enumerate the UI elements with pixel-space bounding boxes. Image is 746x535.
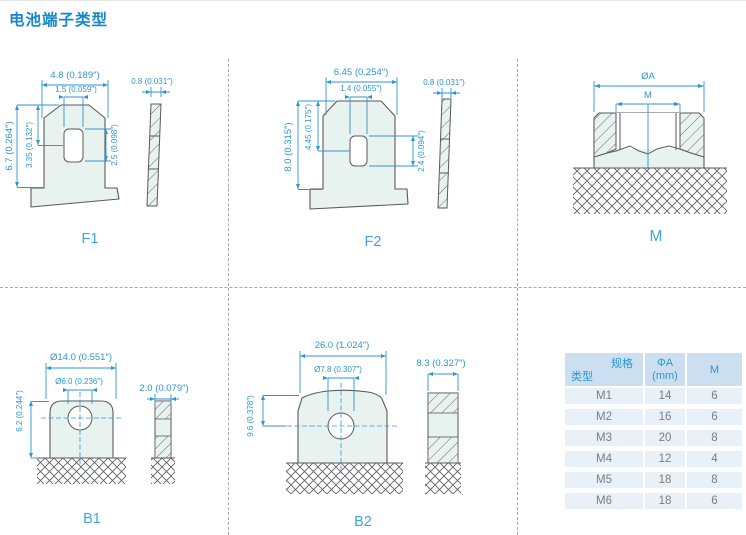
f1-dim-thickness: 0.8 (0.031″) (131, 77, 173, 97)
svg-text:8.0 (0.315″): 8.0 (0.315″) (283, 122, 294, 171)
svg-text:8.3 (0.327″): 8.3 (0.327″) (416, 358, 465, 369)
svg-text:6.2 (0.244″): 6.2 (0.244″) (15, 390, 24, 432)
svg-text:6.45 (0.254″): 6.45 (0.254″) (334, 67, 389, 78)
cell-type: M3 (565, 430, 643, 446)
b1-dim-outer-diameter: Ø14.0 (0.551″) (46, 352, 116, 399)
page-title: 电池端子类型 (9, 8, 108, 30)
cell-phia: 14 (645, 388, 685, 404)
table-header-type: 类型 (571, 368, 593, 384)
table-row: M3 20 8 (565, 430, 742, 446)
svg-text:2.5 (0.098″): 2.5 (0.098″) (110, 124, 119, 166)
b2-base-crosshatch (286, 463, 403, 494)
cell-type: M5 (565, 472, 643, 488)
svg-text:Ø14.0 (0.551″): Ø14.0 (0.551″) (50, 352, 112, 363)
b2-diagram: 26.0 (1.024″) Ø7.8 (0.307″) 9.6 (0.378″)… (228, 287, 517, 535)
table-header-phia-line1: ΦA (657, 357, 673, 370)
svg-text:6.7 (0.264″): 6.7 (0.264″) (4, 121, 15, 170)
b1-dim-height: 6.2 (0.244″) (15, 390, 49, 458)
b1-base-crosshatch (37, 458, 126, 484)
f2-label: F2 (365, 234, 382, 250)
svg-text:4.45 (0.175″): 4.45 (0.175″) (304, 104, 313, 150)
svg-text:9.6 (0.378″): 9.6 (0.378″) (246, 395, 255, 437)
cell-phia: 18 (645, 493, 685, 509)
table-header-row: 规格 类型 ΦA (mm) M (565, 353, 742, 386)
b2-label: B2 (354, 514, 372, 530)
cell-phia: 12 (645, 451, 685, 467)
b1-label: B1 (83, 511, 101, 527)
table-corner-cell: 规格 类型 (565, 353, 643, 386)
cell-m: 6 (687, 409, 742, 425)
m-left-wall-section (594, 113, 616, 157)
svg-text:0.8 (0.031″): 0.8 (0.031″) (131, 77, 173, 86)
f1-terminal-hole (64, 129, 83, 162)
f2-diagram: 6.45 (0.254″) 1.4 (0.055″) 8.0 (0.315″) … (228, 61, 517, 287)
b2-dim-thickness: 8.3 (0.327″) (416, 358, 465, 391)
table-row: M6 18 6 (565, 493, 742, 509)
svg-text:Ø7.8 (0.307″): Ø7.8 (0.307″) (314, 365, 362, 374)
svg-text:4.8 (0.189″): 4.8 (0.189″) (50, 70, 99, 81)
f2-side-view (438, 99, 451, 208)
cell-type: M4 (565, 451, 643, 467)
cell-type: M2 (565, 409, 643, 425)
table-row: M5 18 8 (565, 472, 742, 488)
b1-side-base-crosshatch (151, 458, 175, 484)
table-row: M4 12 4 (565, 451, 742, 467)
cell-m: 8 (687, 430, 742, 446)
m-base-crosshatch (573, 168, 727, 214)
svg-text:M: M (644, 90, 652, 101)
m-right-wall-section (680, 113, 704, 157)
table-header-spec: 规格 (611, 355, 633, 371)
table-row: M2 16 6 (565, 409, 742, 425)
cell-type: M6 (565, 493, 643, 509)
b2-side-base-crosshatch (425, 463, 461, 494)
table-header-phia-line2: (mm) (652, 370, 678, 383)
cell-m: 6 (687, 388, 742, 404)
cell-m: 4 (687, 451, 742, 467)
m-label: M (650, 228, 663, 246)
cell-phia: 18 (645, 472, 685, 488)
svg-text:1.4 (0.055″): 1.4 (0.055″) (340, 84, 382, 93)
b2-dim-height: 9.6 (0.378″) (246, 395, 299, 437)
svg-text:2.0 (0.079″): 2.0 (0.079″) (139, 383, 188, 394)
b1-dim-hole-diameter: Ø6.0 (0.236″) (55, 377, 103, 404)
svg-text:3.35 (0.132″): 3.35 (0.132″) (25, 122, 34, 168)
table-header-phia: ΦA (mm) (645, 353, 685, 386)
f2-terminal-hole (350, 136, 367, 166)
svg-text:26.0 (1.024″): 26.0 (1.024″) (315, 340, 370, 351)
f1-diagram: 4.8 (0.189″) 1.5 (0.059″) 6.7 (0.264″) 3… (0, 61, 228, 287)
cell-type: M1 (565, 388, 643, 404)
table-row: M1 14 6 (565, 388, 742, 404)
svg-text:1.5 (0.059″): 1.5 (0.059″) (55, 85, 97, 94)
b1-diagram: Ø14.0 (0.551″) Ø6.0 (0.236″) 6.2 (0.244″… (0, 287, 228, 535)
cell-m: 6 (687, 493, 742, 509)
m-diagram: ØA M (517, 61, 746, 287)
svg-text:Ø6.0 (0.236″): Ø6.0 (0.236″) (55, 377, 103, 386)
svg-text:ØA: ØA (641, 71, 655, 82)
cell-phia: 20 (645, 430, 685, 446)
f2-dim-thickness: 0.8 (0.031″) (423, 78, 465, 98)
spec-table: 规格 类型 ΦA (mm) M M1 14 6 M2 16 6 M3 20 8 … (565, 353, 742, 514)
f1-side-view (147, 104, 161, 206)
svg-text:0.8 (0.031″): 0.8 (0.031″) (423, 78, 465, 87)
table-header-m: M (687, 353, 742, 386)
f1-label: F1 (82, 231, 99, 247)
svg-text:2.4 (0.094″): 2.4 (0.094″) (417, 130, 426, 172)
cell-m: 8 (687, 472, 742, 488)
cell-phia: 16 (645, 409, 685, 425)
